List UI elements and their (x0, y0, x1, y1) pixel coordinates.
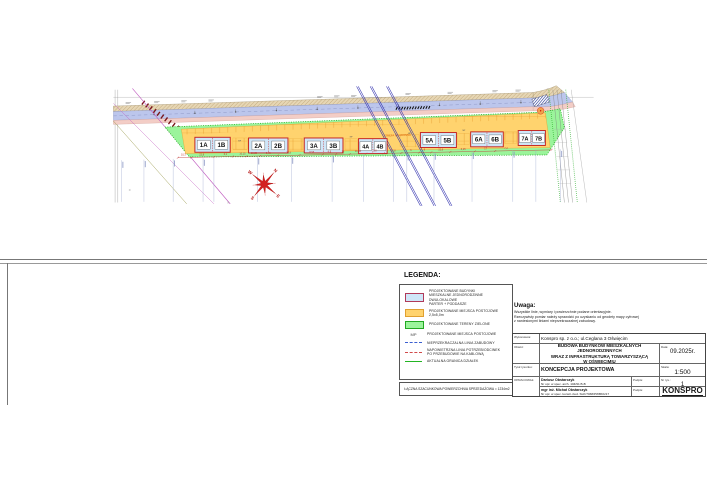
site-plan: MP MP MP MP STREFA OCHRONNA (0, 85, 707, 265)
date-cell: Data: 09.2025r. (659, 343, 705, 363)
object-value: BUDOWA BUDYNKÓW MIESZKALNYCH JEDNORODZIN… (539, 343, 659, 363)
contractor-value: Konspro sp. z o.o.; ul.Ceglana 3 Oświęci… (539, 334, 705, 343)
svg-text:10,15: 10,15 (239, 152, 246, 155)
legend-item-green: PROJEKTOWANE TERENY ZIELONE (405, 321, 509, 329)
logo-text: KONSPRO (662, 387, 702, 396)
svg-text:×: × (129, 188, 132, 193)
building-label: 1B (217, 142, 225, 149)
object-label: Obiekt: (513, 343, 539, 363)
building-pair-6: 6A 6B (471, 132, 504, 147)
legend-item-label: PROJEKTOWANE BUDYNKI MIESZKALNE JEDNOROD… (429, 289, 509, 306)
dashed-blue-line-swatch (405, 342, 422, 343)
compass-e: E (275, 193, 281, 199)
signature-cell: Podpis: (631, 386, 659, 396)
author-1: Dariusz Obstarczyk Nr upr. w spec. arch.… (539, 376, 631, 386)
note-body: Wszystkie linie, wymiary i powierzchnie … (514, 310, 704, 324)
building-label: 4A (362, 145, 369, 151)
svg-text:×: × (227, 200, 230, 205)
parking-swatch (405, 309, 424, 317)
building-label: 7A (522, 136, 529, 142)
building-label: 6A (475, 137, 483, 144)
building-label: 2A (254, 143, 262, 150)
author-2: mgr inż. Michał Obstarczyk Nr upr. w spe… (539, 386, 631, 396)
title-block: Wykonawca: Konspro sp. z o.o.; ul.Ceglan… (512, 333, 706, 397)
green-line-swatch (405, 361, 422, 362)
building-label: 3B (329, 143, 337, 150)
note-title: Uwaga: (514, 303, 704, 309)
building-label: 3A (310, 143, 318, 150)
building-pair-2: 2A 2B (249, 138, 288, 153)
frame-line-left (7, 263, 8, 405)
scale-value: 1:500 (661, 369, 704, 376)
svg-text:10,3: 10,3 (181, 154, 186, 157)
legend-item-buildings: PROJEKTOWANE BUDYNKI MIESZKALNE JEDNOROD… (405, 289, 509, 306)
company-logo: FIRMA PROJEKTOWA KONSPRO www.konspro.pl (659, 386, 705, 396)
legend-item-label: PROJEKTOWANE MIEJSCA POSTOJOWE (427, 332, 496, 336)
legend-item-building-line: NIEPRZEKRACZALNA LINIA ZABUDOWY (405, 341, 509, 345)
survey-cross-marks: ×× (129, 188, 230, 205)
legend-item-label: NAPOWIETRZNA LINIA POTRZEB/ODCINEK PO PR… (427, 348, 500, 357)
frame-line-top (0, 259, 707, 260)
legend-item-label: AKTUALNA GRANICA DZIAŁEK (427, 359, 478, 363)
compass-n: N (273, 168, 279, 174)
legend-item-label: PROJEKTOWANE MIEJSCA POSTOJOWE 2,5x5,0m (429, 309, 509, 318)
building-label: 5A (425, 137, 433, 144)
building-pair-7: 7A 7B (518, 131, 545, 146)
legend: PROJEKTOWANE BUDYNKI MIESZKALNE JEDNOROD… (399, 284, 513, 380)
svg-text:8,58: 8,58 (309, 151, 314, 154)
frame-line-bottom (0, 263, 707, 264)
legend-item-power-line: NAPOWIETRZNA LINIA POTRZEB/ODCINEK PO PR… (405, 348, 509, 357)
author-label: OPRACOWAŁ: (513, 376, 539, 396)
contractor-label: Wykonawca: (513, 334, 539, 343)
legend-item-parking-area: PROJEKTOWANE MIEJSCA POSTOJOWE 2,5x5,0m (405, 309, 509, 318)
signature-cell: Podpis: (631, 376, 659, 386)
junction-dot (540, 110, 541, 111)
building-label: 4B (377, 145, 384, 151)
legend-item-label: PROJEKTOWANE TERENY ZIELONE (429, 322, 490, 326)
parcel-boundary-lines (122, 149, 561, 202)
svg-text:6,25: 6,25 (461, 148, 466, 151)
building-swatch (405, 293, 424, 302)
svg-text:10,25: 10,25 (251, 152, 258, 155)
drawing-title-value: KONCEPCJA PROJEKTOWA (539, 363, 659, 376)
legend-title: LEGENDA: (404, 272, 441, 279)
date-value: 09.2025r. (661, 349, 704, 355)
svg-text:22,8: 22,8 (199, 153, 204, 156)
legend-item-label: NIEPRZEKRACZALNA LINIA ZABUDOWY (427, 341, 495, 345)
svg-text:10,45: 10,45 (355, 150, 362, 153)
svg-text:9,45: 9,45 (266, 152, 271, 155)
drawing-sheet: MP MP MP MP STREFA OCHRONNA (0, 0, 707, 500)
sales-area-summary: ŁĄCZNA SZACUNKOWA POWIERZCHNIA SPRZEDAŻO… (399, 382, 515, 396)
svg-text:22,8: 22,8 (391, 149, 396, 152)
svg-text:22,8: 22,8 (438, 148, 443, 151)
drawing-number-cell: Nr rys.: 1 (659, 376, 705, 386)
green-swatch (405, 321, 424, 329)
compass-rose: N E S W (235, 155, 292, 212)
compass-s: S (250, 195, 256, 201)
scale-cell: Skala: 1:500 (659, 363, 705, 376)
building-pair-1: 1A 1B (195, 137, 230, 152)
author-credentials: Nr upr. w spec. konstr.-bud. SLK/7038/PW… (541, 392, 630, 396)
legend-item-parcel-boundary: AKTUALNA GRANICA DZIAŁEK (405, 359, 509, 363)
compass-w: W (247, 169, 254, 176)
building-label: 2B (274, 143, 282, 150)
mp-symbol: MP (405, 332, 422, 338)
legend-item-mp: MP PROJEKTOWANE MIEJSCA POSTOJOWE (405, 332, 509, 338)
dashed-red-line-swatch (405, 352, 422, 353)
note: Uwaga: Wszystkie linie, wymiary i powier… (514, 303, 704, 324)
svg-text:22,8: 22,8 (286, 152, 291, 155)
drawing-title-label: Tytuł rysunku: (513, 363, 539, 376)
building-label: 6B (491, 137, 499, 144)
building-pair-5: 5A 5B (420, 133, 456, 148)
building-label: 7B (535, 136, 542, 142)
building-label: 1A (200, 142, 208, 149)
building-label: 5B (444, 137, 452, 144)
